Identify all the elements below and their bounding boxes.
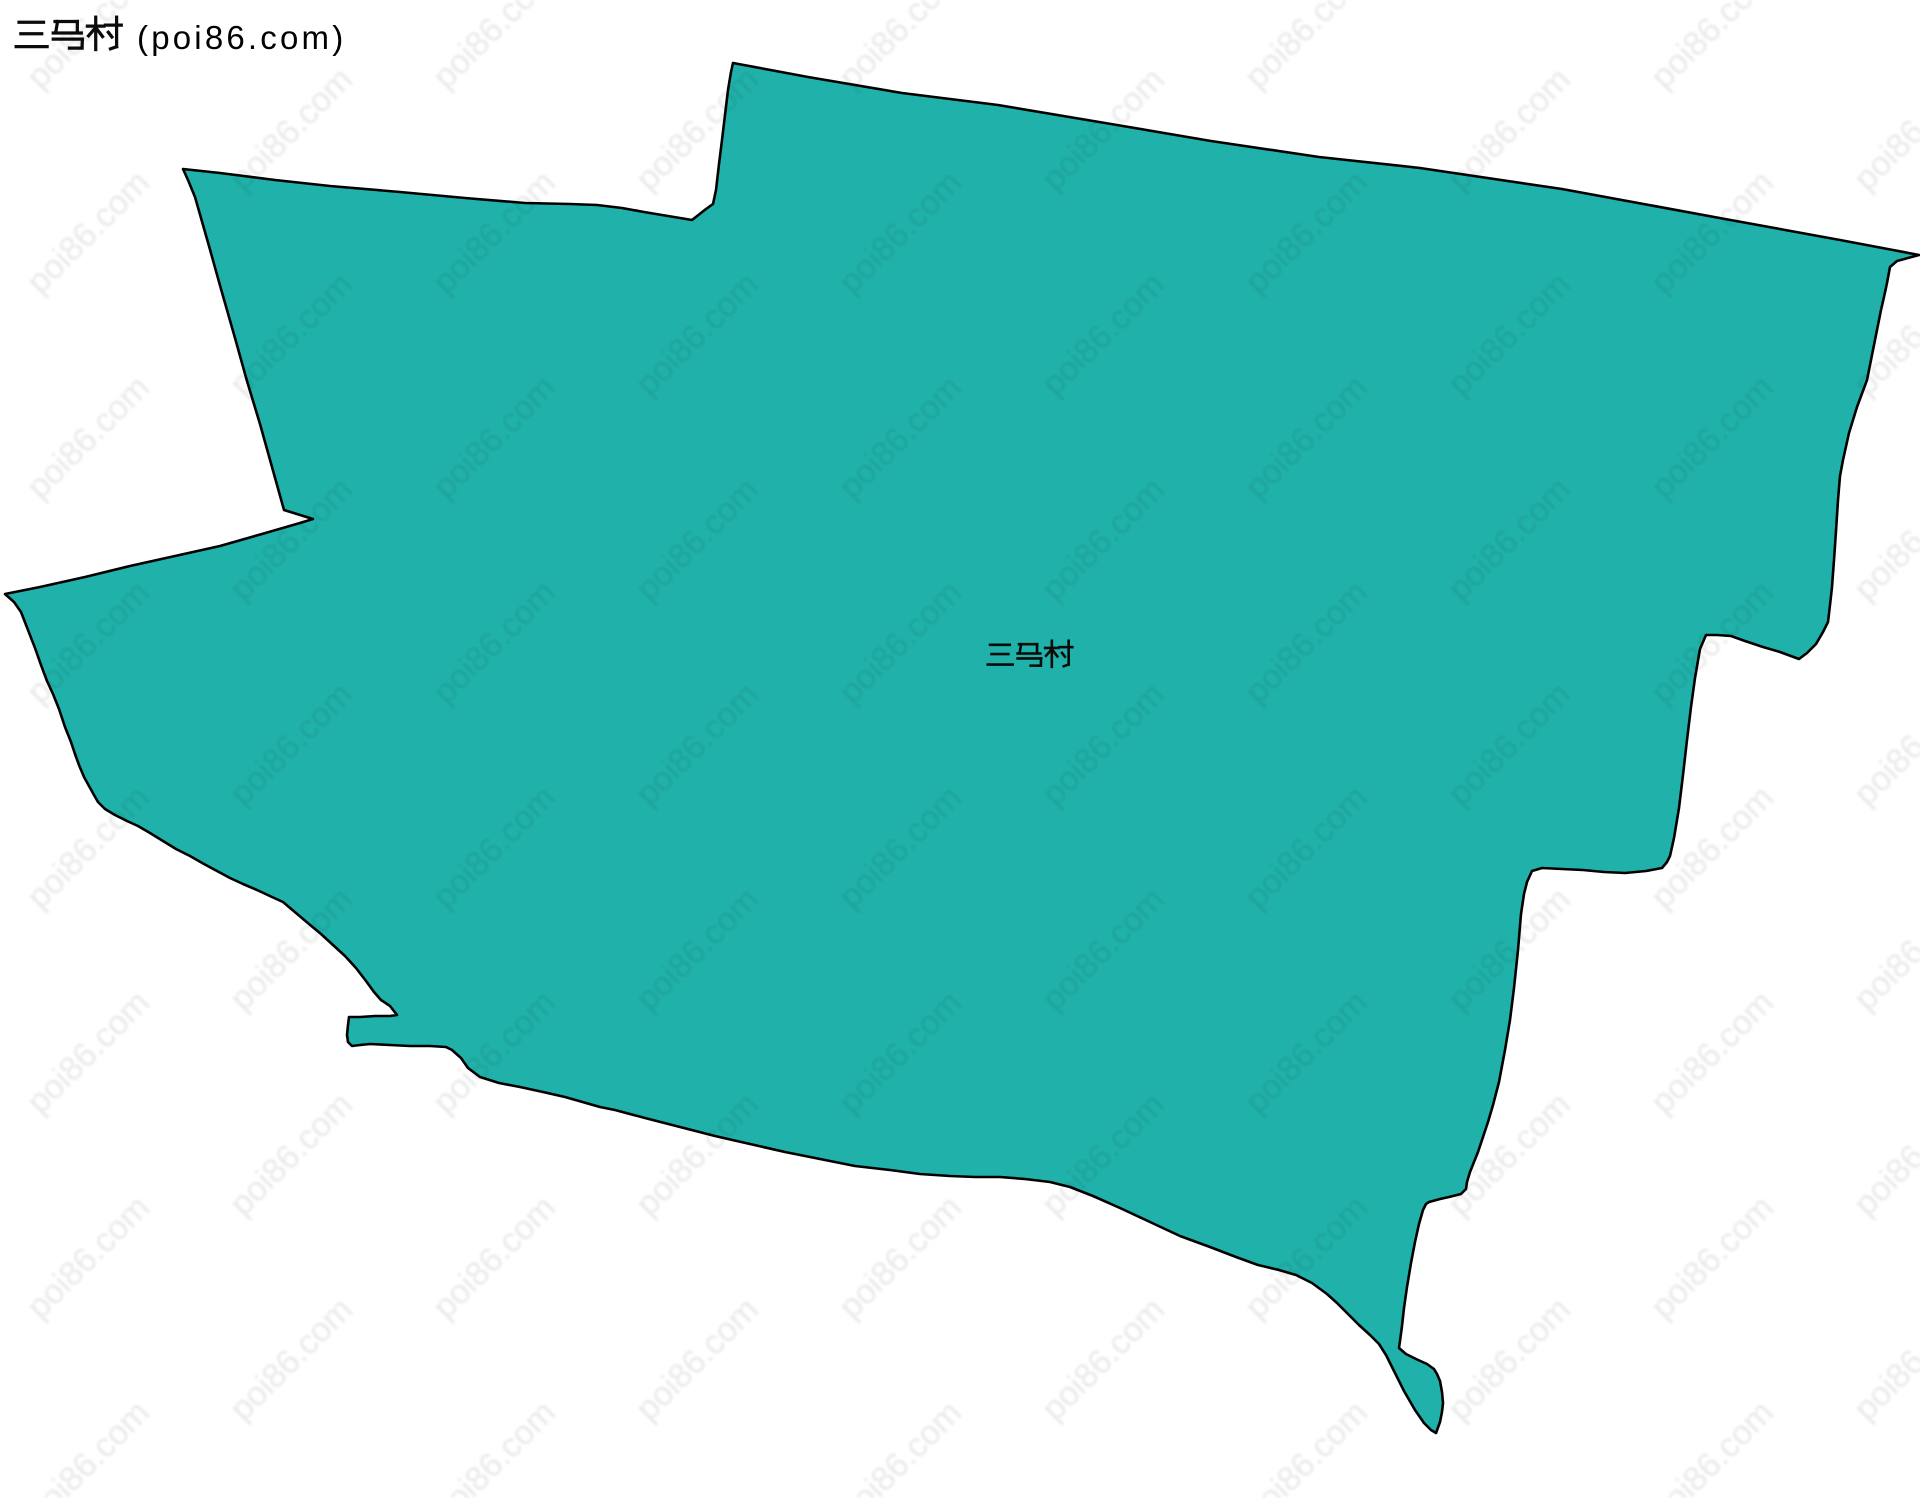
svg-text:(poi86.com): (poi86.com) <box>137 19 346 56</box>
